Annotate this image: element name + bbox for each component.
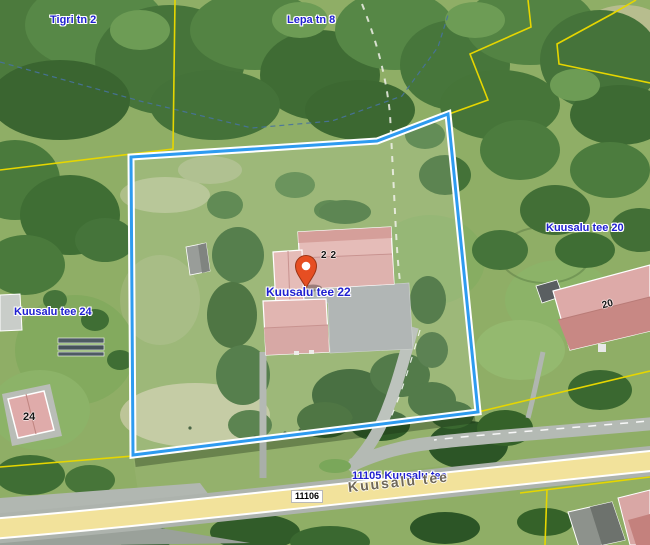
road-number-badge: 11106 [291,490,323,503]
solar-panels [58,338,104,356]
aerial-basemap [0,0,650,545]
traffic-island [319,459,351,473]
map-viewport[interactable]: Tigri tn 2 Lepa tn 8 Kuusalu tee 20 Kuus… [0,0,650,545]
marker-pin-hole [302,262,311,271]
